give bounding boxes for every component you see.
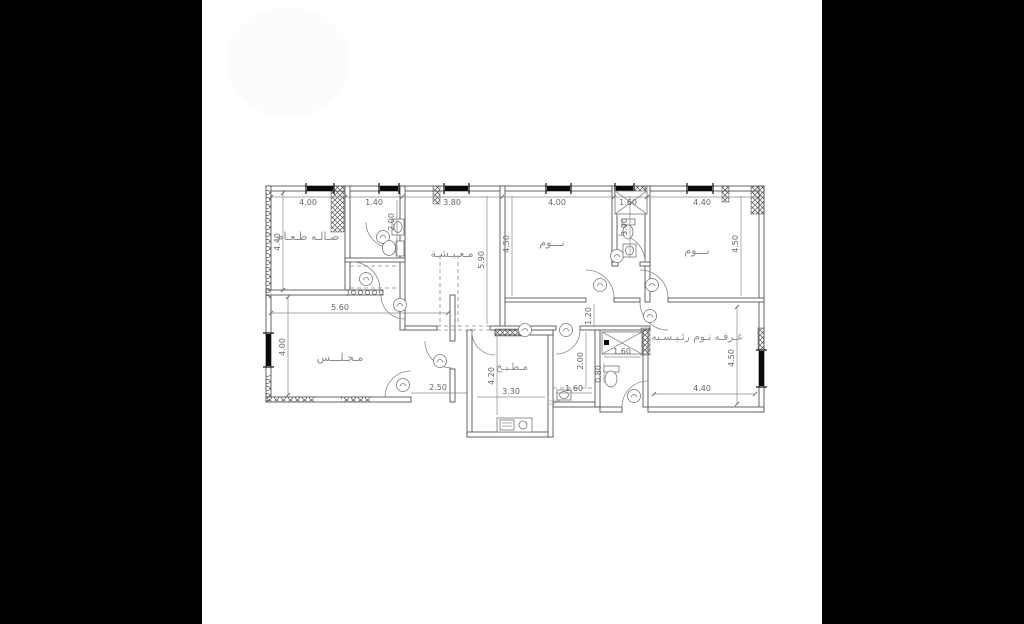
room-label-kitchen: مـطـبـخ xyxy=(496,362,528,373)
window-icon xyxy=(756,350,767,387)
dim-label: 3.30 xyxy=(502,387,520,396)
window-icon xyxy=(263,333,274,367)
dim-label: 2.00 xyxy=(576,352,585,370)
toilet-icon xyxy=(604,366,619,387)
stove-icon xyxy=(497,418,532,432)
window-icon xyxy=(444,183,469,194)
dim-label: 3.00 xyxy=(620,218,629,236)
window-icon xyxy=(379,183,399,194)
dim-label: 4.00 xyxy=(278,338,287,356)
dim-label: 2.50 xyxy=(429,383,447,392)
door-tag-icon xyxy=(594,279,607,292)
door-tag-icon xyxy=(611,250,624,263)
dim-label: 1.20 xyxy=(584,307,593,325)
door-tag-icon xyxy=(397,379,410,392)
dim-label: 4.50 xyxy=(731,235,740,253)
dim-label: 1.60 xyxy=(613,347,631,356)
dim-label: 4.40 xyxy=(693,198,711,207)
dim-label: 4.50 xyxy=(502,235,511,253)
room-label-dining: صـالـه طـعـام xyxy=(277,230,340,243)
faint-watermark xyxy=(226,7,350,117)
dim-label: 2.00 xyxy=(387,213,396,231)
door-tag-icon xyxy=(628,390,641,403)
door-tag-icon xyxy=(519,324,532,337)
dim-label: 1.40 xyxy=(365,198,383,207)
dim-label: 1.60 xyxy=(565,384,583,393)
dim-label: 4.00 xyxy=(299,198,317,207)
toilet-icon xyxy=(383,241,405,257)
room-label-living: مـعـيـشـة xyxy=(430,247,473,260)
room-label-majlis: مـجـلـــس xyxy=(317,351,364,364)
dim-label: 4.40 xyxy=(693,384,711,393)
room-label-bed1: نـــوم xyxy=(539,236,564,249)
door-tag-icon xyxy=(360,273,373,286)
door-tag-icon xyxy=(394,299,407,312)
door-tag-icon xyxy=(560,324,573,337)
dim-label: 4.00 xyxy=(548,198,566,207)
room-label-bed2: نـــوم xyxy=(684,244,709,257)
dim-label: 4.20 xyxy=(487,367,496,385)
window-icon xyxy=(306,183,334,194)
floor-plan-svg: 4.00 1.40 3.80 4.00 1.60 4.40 2.00 4.40 … xyxy=(202,0,822,624)
dim-label: 5.60 xyxy=(331,303,349,312)
door-tag-icon xyxy=(434,355,447,368)
dim-label: 3.80 xyxy=(443,198,461,207)
screenshot-stage: 4.00 1.40 3.80 4.00 1.60 4.40 2.00 4.40 … xyxy=(0,0,1024,624)
dim-label: 0.80 xyxy=(594,365,603,383)
room-label-master: غـرفـه نـوم رئـيـسـيه xyxy=(651,331,743,343)
door-tag-icon xyxy=(646,279,659,292)
window-icon xyxy=(687,183,713,194)
dim-label: 1.60 xyxy=(619,198,637,207)
window-icon xyxy=(546,183,571,194)
dim-label: 5.90 xyxy=(477,251,486,269)
dim-label: 4.50 xyxy=(727,349,736,367)
door-tag-icon xyxy=(644,310,657,323)
drawing-canvas: 4.00 1.40 3.80 4.00 1.60 4.40 2.00 4.40 … xyxy=(202,0,822,624)
dashed-openings xyxy=(350,255,595,388)
sink-icon xyxy=(623,244,636,257)
